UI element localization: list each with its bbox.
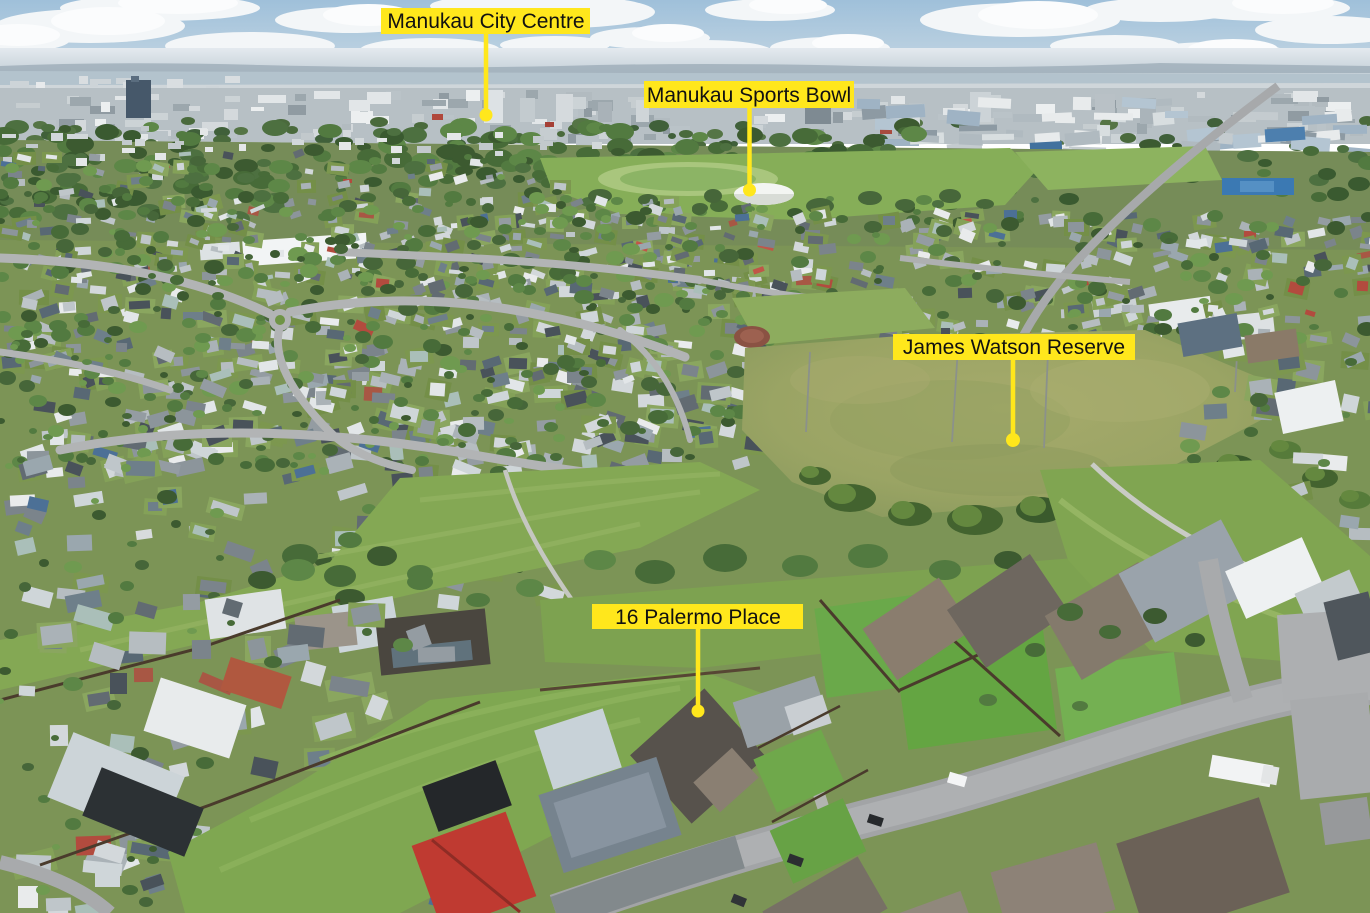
svg-text:Manukau Sports Bowl: Manukau Sports Bowl [647,84,851,107]
svg-text:Manukau City Centre: Manukau City Centre [387,10,584,33]
svg-text:James Watson Reserve: James Watson Reserve [903,336,1125,359]
svg-text:16 Palermo Place: 16 Palermo Place [615,606,781,629]
